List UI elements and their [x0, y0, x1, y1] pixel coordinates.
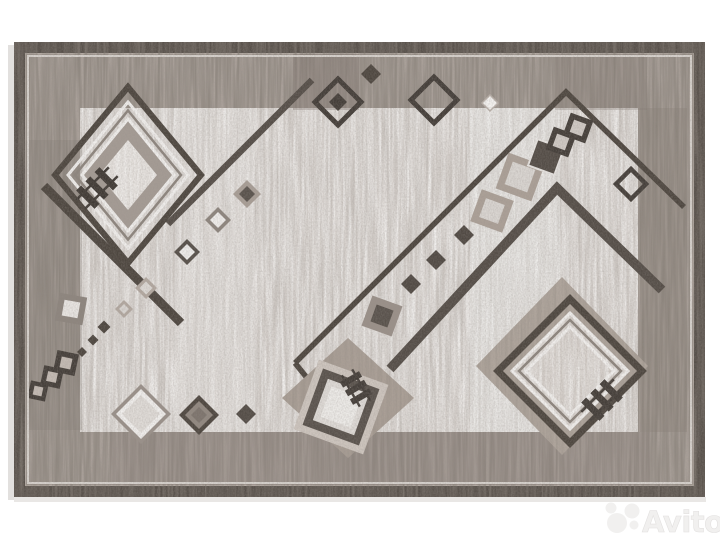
rug: [14, 42, 705, 497]
watermark-text: Avito: [642, 505, 720, 539]
photo-shadow-left: [8, 45, 15, 500]
photo-shadow-bottom: [14, 497, 706, 502]
rug-grain-texture: [14, 42, 705, 497]
product-photo: Avito: [0, 0, 720, 540]
rug-photo-canvas: Avito: [0, 0, 720, 540]
